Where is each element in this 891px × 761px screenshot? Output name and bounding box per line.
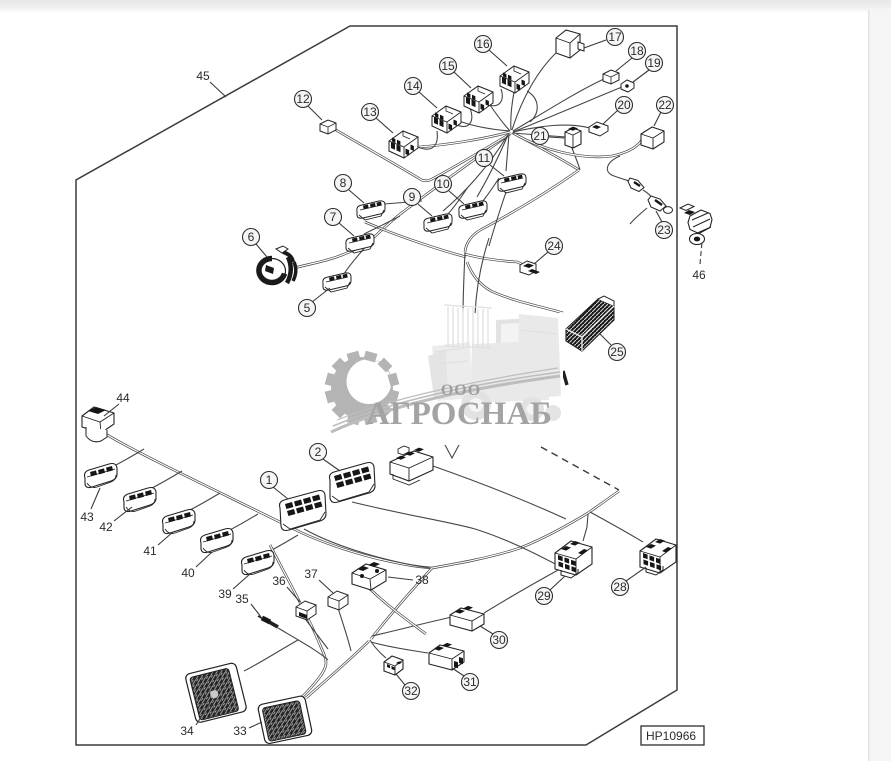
svg-text:17: 17 xyxy=(608,30,622,44)
svg-text:22: 22 xyxy=(658,98,672,112)
svg-text:30: 30 xyxy=(492,633,506,647)
svg-text:42: 42 xyxy=(99,520,113,534)
svg-text:2: 2 xyxy=(315,445,322,459)
svg-text:20: 20 xyxy=(617,98,631,112)
svg-text:АГРОСНАБ: АГРОСНАБ xyxy=(366,396,552,432)
svg-text:21: 21 xyxy=(533,129,547,143)
svg-text:41: 41 xyxy=(143,544,157,558)
svg-text:45: 45 xyxy=(196,69,210,83)
svg-text:28: 28 xyxy=(613,580,627,594)
svg-text:46: 46 xyxy=(692,268,706,282)
svg-text:6: 6 xyxy=(248,230,255,244)
svg-text:19: 19 xyxy=(647,56,661,70)
svg-text:13: 13 xyxy=(363,105,377,119)
svg-text:24: 24 xyxy=(547,239,561,253)
svg-text:25: 25 xyxy=(610,345,624,359)
svg-text:32: 32 xyxy=(404,684,418,698)
svg-text:HP10966: HP10966 xyxy=(646,729,696,743)
svg-text:36: 36 xyxy=(272,574,286,588)
svg-text:12: 12 xyxy=(296,92,310,106)
svg-text:37: 37 xyxy=(304,567,318,581)
svg-text:43: 43 xyxy=(80,510,94,524)
svg-text:23: 23 xyxy=(657,223,671,237)
svg-text:44: 44 xyxy=(116,391,130,405)
svg-text:11: 11 xyxy=(478,151,491,165)
svg-text:16: 16 xyxy=(476,37,490,51)
svg-text:15: 15 xyxy=(441,59,455,73)
svg-text:39: 39 xyxy=(218,587,232,601)
svg-text:34: 34 xyxy=(180,724,194,738)
svg-text:35: 35 xyxy=(235,592,249,606)
svg-text:40: 40 xyxy=(181,566,195,580)
svg-text:10: 10 xyxy=(436,177,450,191)
svg-text:1: 1 xyxy=(266,473,273,487)
svg-text:9: 9 xyxy=(409,190,416,204)
svg-text:5: 5 xyxy=(304,301,311,315)
svg-text:14: 14 xyxy=(406,79,420,93)
svg-text:7: 7 xyxy=(330,210,337,224)
svg-text:8: 8 xyxy=(340,176,347,190)
svg-text:18: 18 xyxy=(630,44,644,58)
svg-text:29: 29 xyxy=(537,589,551,603)
svg-text:38: 38 xyxy=(415,573,429,587)
svg-text:33: 33 xyxy=(233,724,247,738)
svg-text:31: 31 xyxy=(463,675,477,689)
